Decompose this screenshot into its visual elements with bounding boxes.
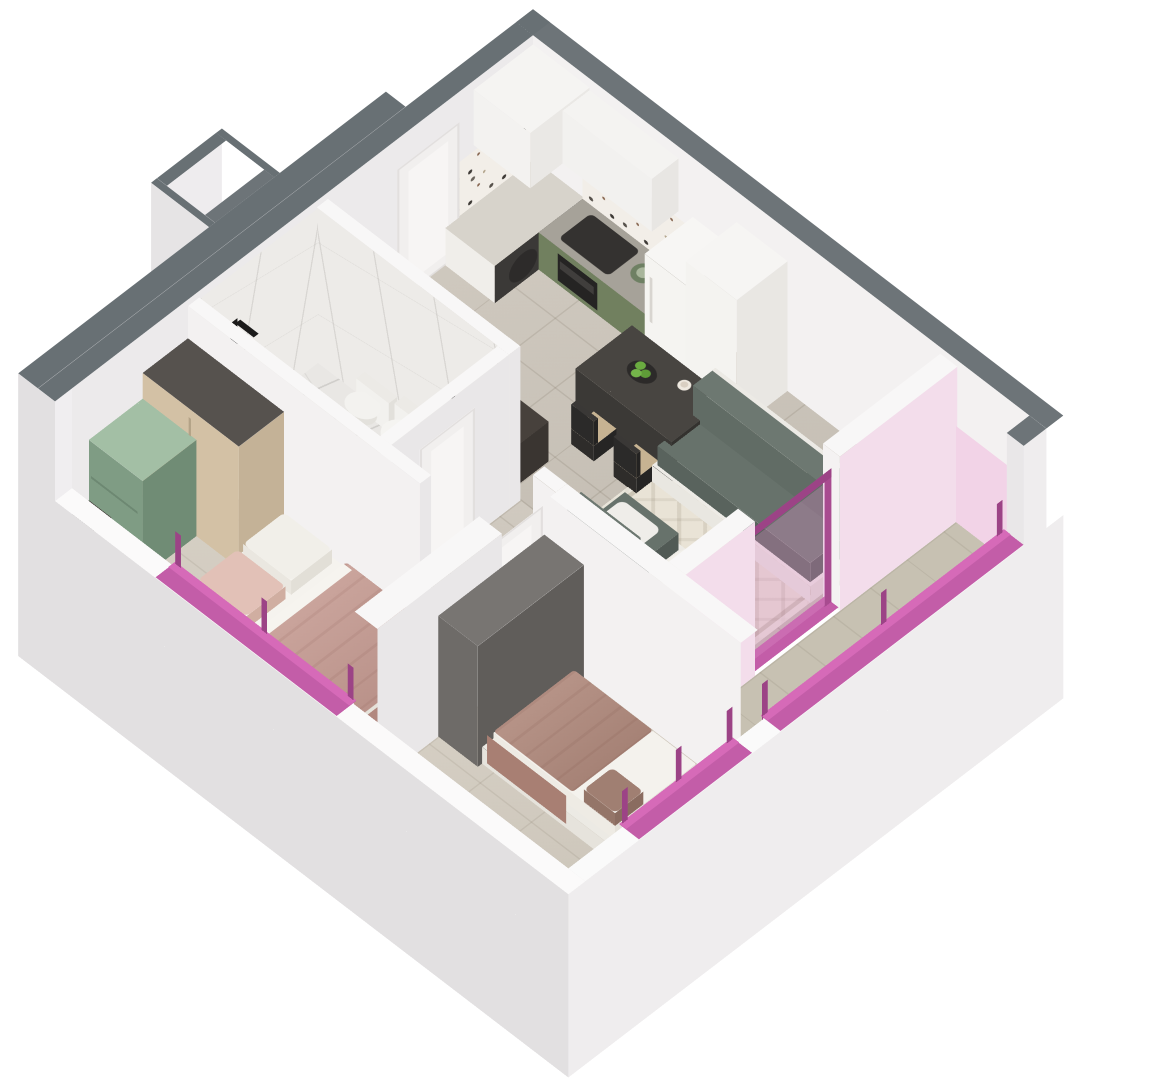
balcony-door-post-1 bbox=[824, 468, 831, 610]
shaft-cap-north bbox=[216, 128, 280, 177]
wall-west-end bbox=[18, 373, 55, 684]
chair-3-back-side bbox=[594, 418, 598, 446]
apartment-floorplan-3d bbox=[0, 0, 1158, 1080]
chair-4-back-side bbox=[636, 451, 640, 479]
fridge-handle bbox=[650, 276, 653, 323]
wall-se-tall-ext bbox=[1024, 429, 1047, 546]
